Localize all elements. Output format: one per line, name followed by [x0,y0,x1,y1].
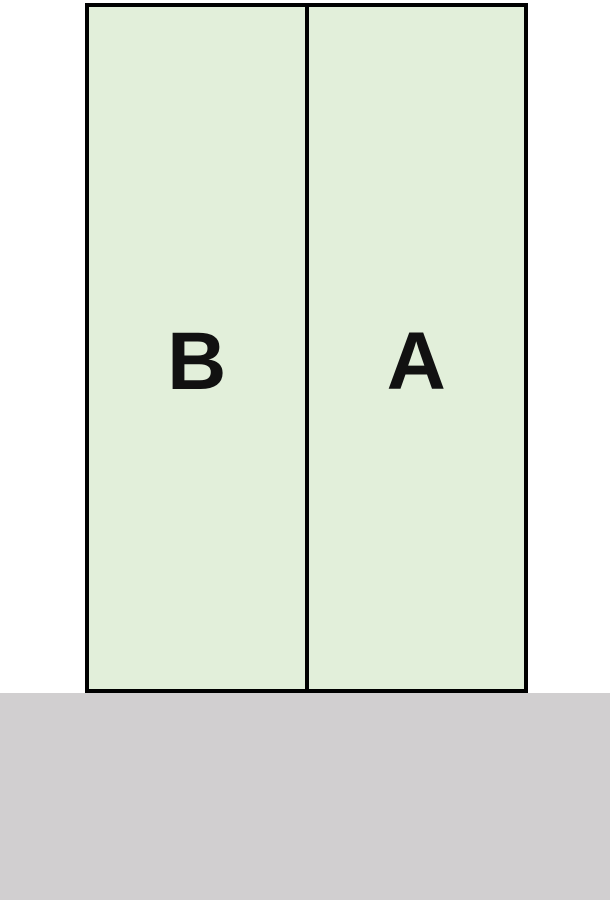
two-unit-structure: B A [85,3,528,693]
unit-b-label: B [167,321,226,403]
diagram-canvas: B A [0,0,610,900]
unit-a-label: A [387,321,446,403]
ground-band [0,693,610,900]
unit-b: B [89,7,309,689]
unit-a: A [309,7,525,689]
